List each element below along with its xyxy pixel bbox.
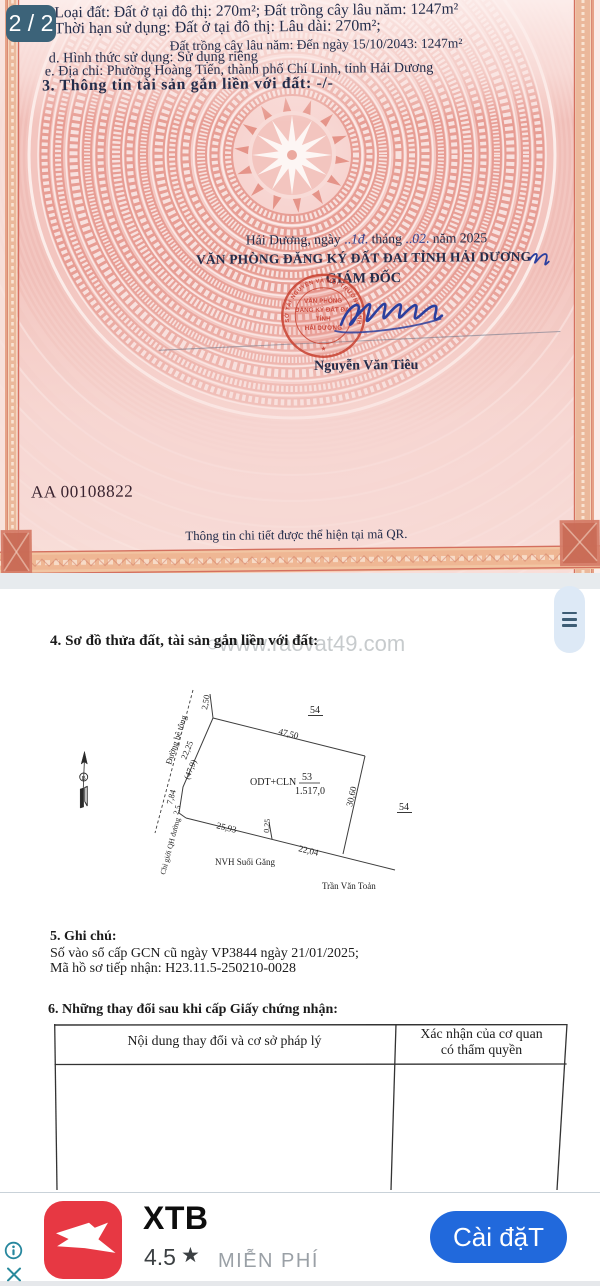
svg-text:★: ★ [321, 345, 327, 353]
svg-text:53: 53 [302, 772, 312, 783]
svg-text:22,25: 22,25 [179, 739, 195, 760]
svg-text:47,50: 47,50 [278, 726, 301, 741]
svg-text:54: 54 [399, 802, 409, 813]
svg-text:54: 54 [310, 705, 320, 716]
svg-text:30,60: 30,60 [344, 785, 358, 807]
svg-text:TỈNH: TỈNH [316, 314, 331, 323]
svg-text:22,04: 22,04 [298, 843, 321, 858]
svg-text:VĂN PHÒNG: VĂN PHÒNG [304, 296, 342, 305]
svg-text:Chỉ giới QH đường: Chỉ giới QH đường [158, 816, 182, 875]
svg-text:Trần Văn Toản: Trần Văn Toản [322, 881, 376, 891]
svg-text:2,50: 2,50 [199, 694, 211, 710]
svg-text:1.517,0: 1.517,0 [295, 786, 325, 797]
svg-text:25,93: 25,93 [216, 820, 239, 835]
svg-text:B: B [82, 775, 86, 782]
svg-text:0,25: 0,25 [262, 819, 272, 834]
svg-text:(47,9): (47,9) [182, 758, 199, 781]
svg-text:ODT+CLN: ODT+CLN [250, 777, 296, 788]
svg-text:NVH Suối Găng: NVH Suối Găng [215, 857, 275, 867]
